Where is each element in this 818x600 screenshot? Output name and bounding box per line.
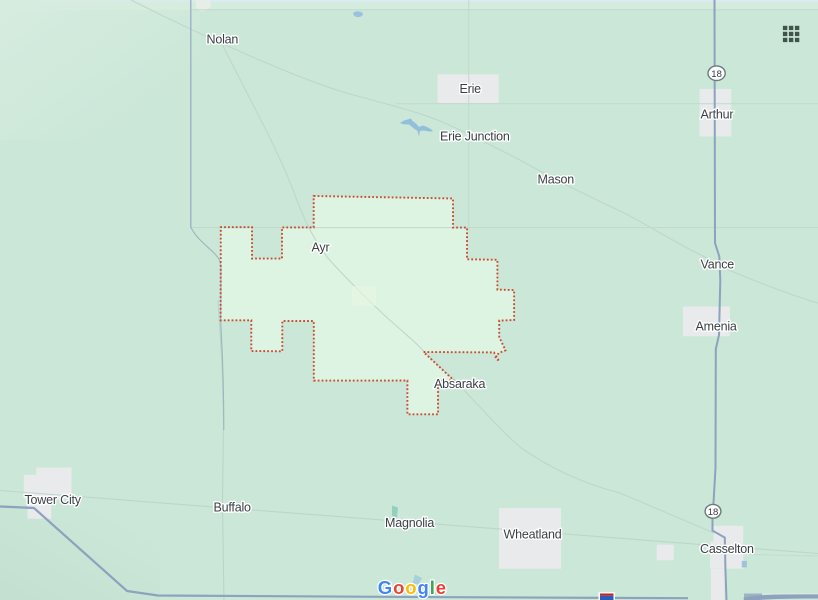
svg-text:Erie: Erie [460, 82, 482, 96]
svg-text:18: 18 [708, 507, 719, 518]
svg-text:Arthur: Arthur [701, 108, 734, 122]
svg-text:Mason: Mason [538, 173, 575, 187]
svg-text:Nolan: Nolan [207, 33, 239, 47]
svg-text:Buffalo: Buffalo [214, 501, 252, 515]
svg-text:Amenia: Amenia [696, 320, 737, 334]
svg-text:Magnolia: Magnolia [385, 516, 434, 530]
svg-text:Erie Junction: Erie Junction [440, 130, 510, 144]
svg-text:Absaraka: Absaraka [434, 377, 485, 391]
svg-text:Ayr: Ayr [312, 241, 330, 255]
svg-text:Google: Google [378, 577, 447, 598]
svg-text:Vance: Vance [701, 258, 735, 272]
svg-text:Tower City: Tower City [25, 493, 82, 507]
svg-text:Casselton: Casselton [700, 542, 754, 556]
svg-text:18: 18 [711, 69, 722, 80]
svg-text:Wheatland: Wheatland [504, 528, 562, 542]
